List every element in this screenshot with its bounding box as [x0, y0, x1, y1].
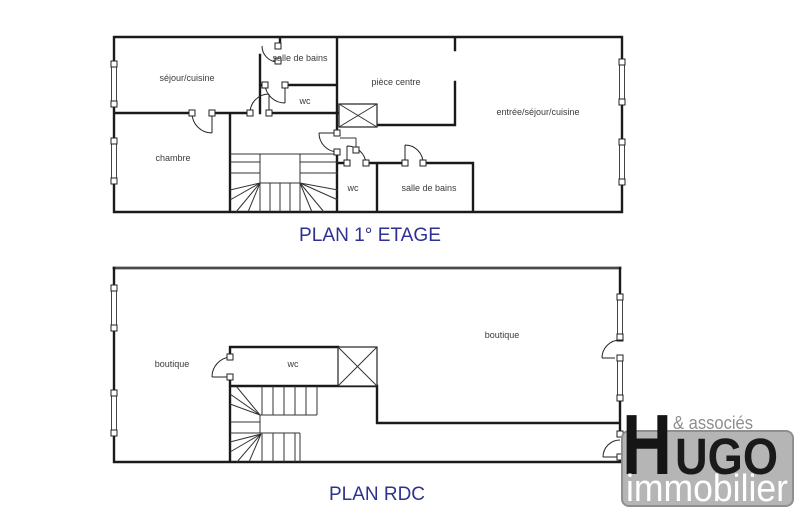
hugo-immobilier-logo: H UGO & associés immobilier — [622, 398, 793, 510]
room-label-wc-haut: wc — [299, 96, 311, 106]
stair-treads — [230, 386, 317, 462]
window-symbol — [109, 138, 119, 184]
room-label-piece-centre: pièce centre — [371, 77, 420, 87]
rdc-title: PLAN RDC — [329, 484, 425, 505]
window-symbol — [109, 390, 119, 436]
logo-tagline: & associés — [673, 413, 753, 433]
floor1-title: PLAN 1° ETAGE — [299, 225, 441, 246]
room-label-salle-de-bains-bas: salle de bains — [401, 183, 457, 193]
window-symbol — [109, 285, 119, 331]
room-label-boutique-gauche: boutique — [155, 359, 190, 369]
floorplan-image: séjour/cuisine salle de bains wc pièce c… — [0, 0, 800, 518]
door-jamb-squares — [227, 335, 623, 460]
floorplan-page: séjour/cuisine salle de bains wc pièce c… — [0, 0, 800, 518]
doors-rdc — [212, 335, 623, 460]
staircase-rdc — [230, 386, 317, 462]
room-label-sejour-cuisine: séjour/cuisine — [159, 73, 214, 83]
room-label-salle-de-bains-haut: salle de bains — [272, 53, 328, 63]
plan-rdc: boutique wc boutique PLAN RDC — [109, 268, 625, 505]
logo-subtitle: immobilier — [626, 468, 788, 510]
window-symbol — [615, 355, 625, 401]
room-label-entree-sejour-cuisine: entrée/séjour/cuisine — [496, 107, 579, 117]
window-symbol — [109, 61, 119, 107]
plan-floor1: séjour/cuisine salle de bains wc pièce c… — [109, 37, 627, 246]
window-symbol — [615, 294, 625, 340]
shaft-x-box-rdc — [338, 347, 377, 386]
room-label-chambre: chambre — [155, 153, 190, 163]
window-symbol — [617, 139, 627, 185]
shaft-x-box — [339, 104, 377, 127]
window-symbol — [617, 59, 627, 105]
room-label-boutique-droite: boutique — [485, 330, 520, 340]
room-label-wc-bas: wc — [347, 183, 359, 193]
room-label-wc-rdc: wc — [287, 359, 299, 369]
